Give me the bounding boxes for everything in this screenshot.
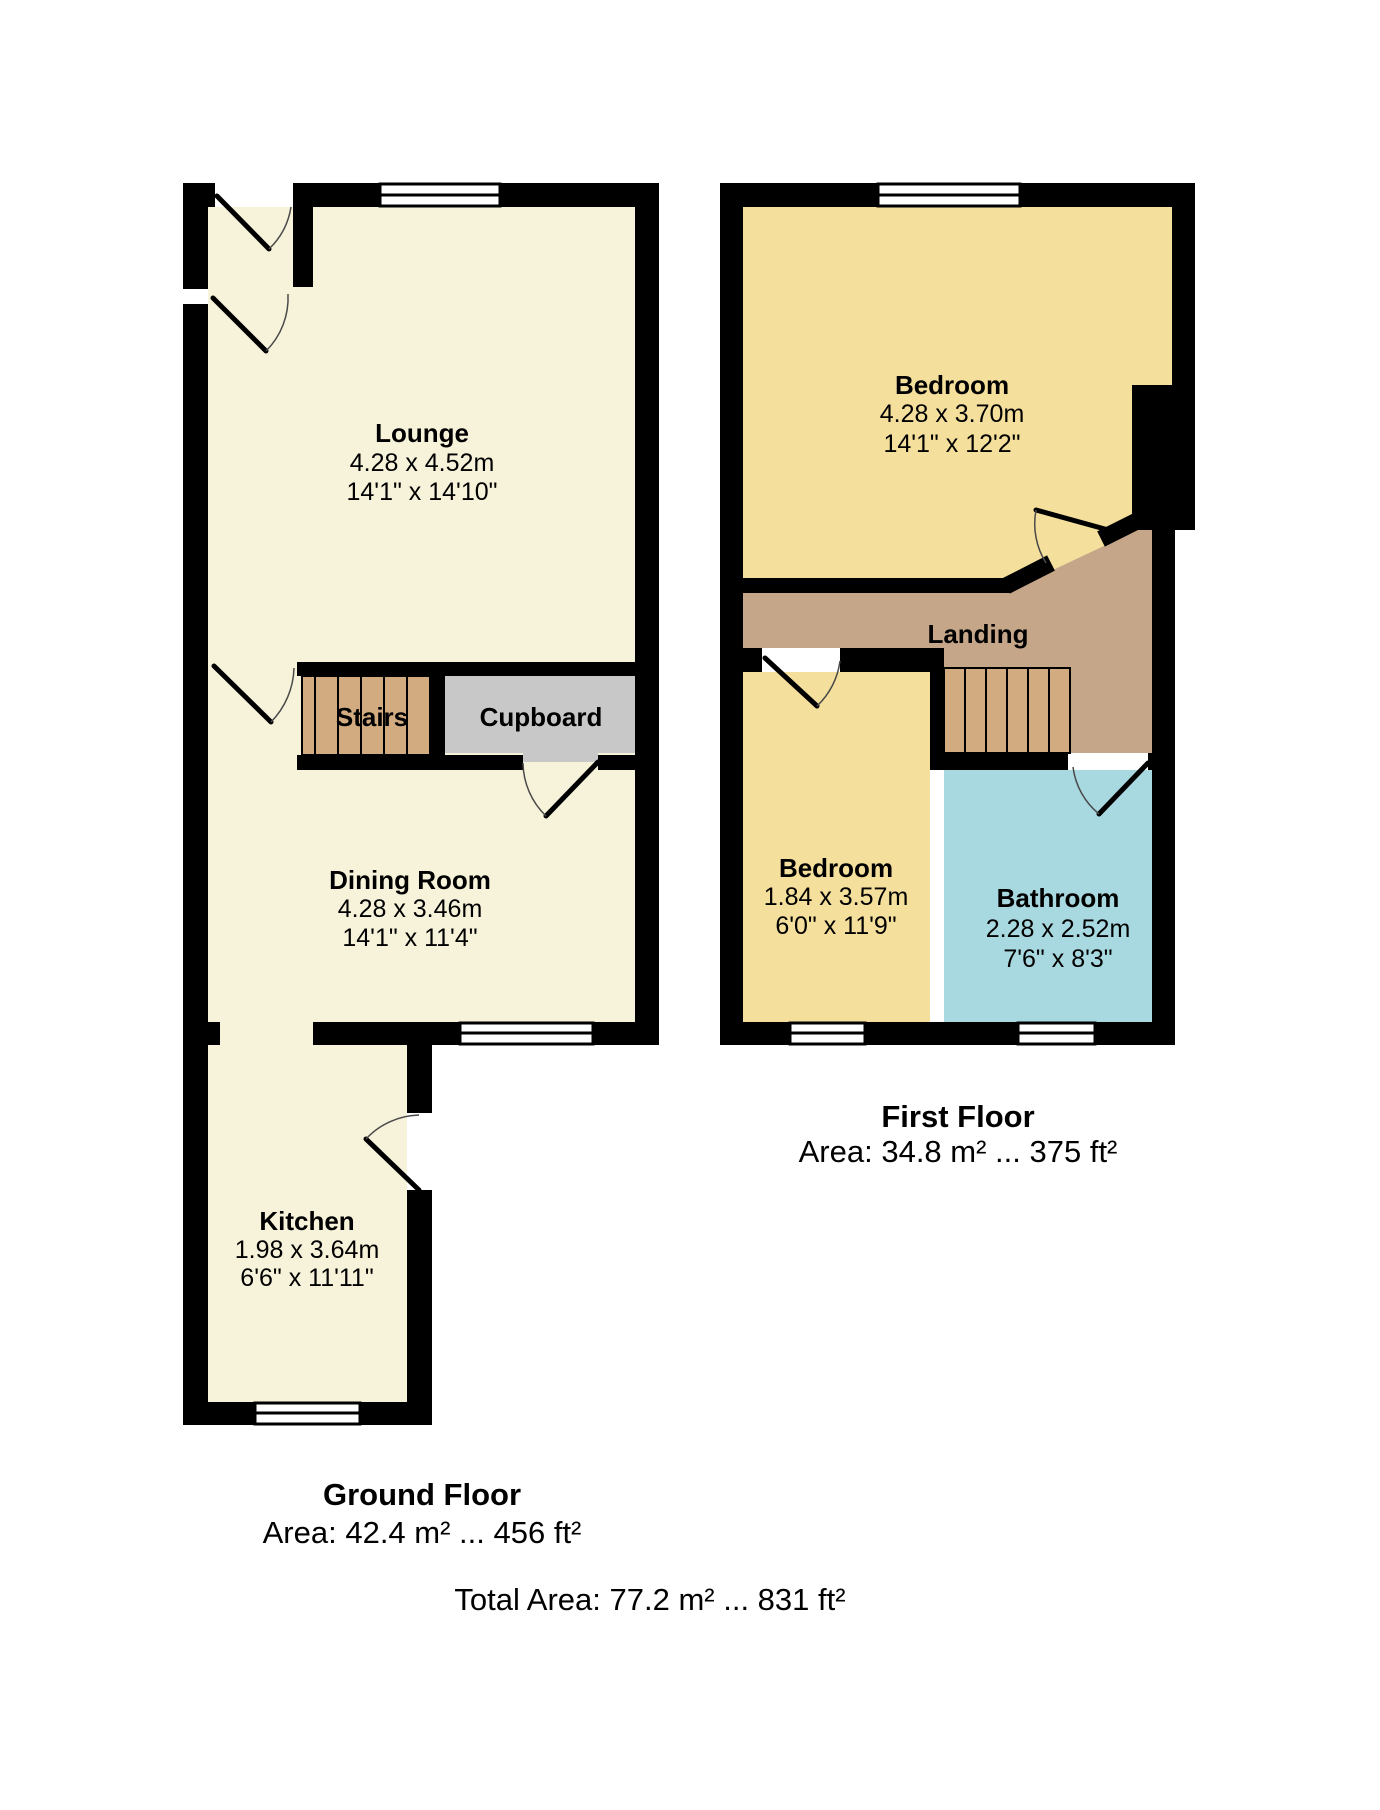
bathroom-label: Bathroom [997, 883, 1120, 913]
bedroom2-metric: 1.84 x 3.57m [764, 883, 909, 911]
dining-label: Dining Room [329, 865, 491, 895]
wall-kitchen-right-lower [407, 1190, 432, 1402]
wall-top-left-piece [183, 183, 215, 207]
ground-floor-plan: Lounge 4.28 x 4.52m 14'1" x 14'10" Stair… [183, 183, 659, 1550]
floorplan-page: Lounge 4.28 x 4.52m 14'1" x 14'10" Stair… [0, 0, 1380, 1810]
bedroom2-imperial: 6'0" x 11'9" [775, 912, 896, 940]
dining-imperial: 14'1" x 11'4" [342, 924, 477, 952]
first-floor-plan: Bedroom 4.28 x 3.70m 14'1" x 12'2" Landi… [720, 183, 1195, 1169]
wall-dining-kitchen-stub [208, 1022, 220, 1045]
wall-dining-bottom-right [593, 1022, 659, 1045]
wall-bedroom2-stairs-divider [930, 648, 944, 770]
bedroom2-label: Bedroom [779, 853, 893, 883]
wall-bedroom1-landing [720, 578, 1010, 593]
wall-left-door-notch [183, 289, 208, 304]
wall-bedroom2-top-right [840, 648, 944, 672]
wall-bathroom-top-left [930, 753, 1068, 770]
first-floor-caption: First Floor [881, 1099, 1034, 1134]
wall-bedroom2-top-left [720, 648, 762, 672]
ground-floor-area: Area: 42.4 m² ... 456 ft² [263, 1515, 582, 1550]
chimney-breast [1132, 385, 1195, 530]
ground-floor-caption: Ground Floor [323, 1477, 521, 1512]
bedroom1-label: Bedroom [895, 370, 1009, 400]
cupboard-threshold [523, 753, 598, 762]
vestibule-partition [293, 207, 313, 287]
wall-stairs-dining [297, 755, 523, 770]
lounge-label: Lounge [375, 418, 469, 448]
wall-bottom-first [720, 1022, 1175, 1045]
kitchen-metric: 1.98 x 3.64m [235, 1236, 380, 1264]
lounge-imperial: 14'1" x 14'10" [346, 478, 497, 506]
bedroom2-floor [743, 672, 930, 1022]
cupboard-label: Cupboard [480, 702, 603, 732]
wall-kitchen-right-upper [407, 1022, 432, 1113]
wall-bathroom-top-right [1148, 753, 1175, 770]
floorplan-drawing: Lounge 4.28 x 4.52m 14'1" x 14'10" Stair… [0, 0, 1380, 1810]
wall-stairs-cupboard [430, 676, 445, 755]
stairs-label: Stairs [336, 702, 408, 732]
wall-cupboard-dining [598, 755, 635, 770]
total-area-label: Total Area: 77.2 m² ... 831 ft² [454, 1582, 845, 1617]
bathroom-metric: 2.28 x 2.52m [986, 915, 1131, 943]
wall-right-lower [1152, 510, 1175, 1045]
wall-left-first [720, 183, 743, 1045]
wall-lounge-stairs [297, 662, 635, 676]
wall-left [183, 183, 208, 1425]
first-floor-stairs [944, 668, 1070, 753]
kitchen-imperial: 6'6" x 11'11" [240, 1264, 373, 1292]
lounge-metric: 4.28 x 4.52m [350, 449, 495, 477]
kitchen-label: Kitchen [259, 1206, 354, 1236]
landing-label: Landing [927, 619, 1028, 649]
first-floor-area: Area: 34.8 m² ... 375 ft² [799, 1134, 1118, 1169]
dining-metric: 4.28 x 3.46m [338, 895, 483, 923]
bedroom1-imperial: 14'1" x 12'2" [883, 430, 1020, 458]
wall-dining-bottom [313, 1022, 460, 1045]
bathroom-imperial: 7'6" x 8'3" [1003, 945, 1112, 973]
wall-right [635, 183, 659, 1045]
bedroom1-metric: 4.28 x 3.70m [880, 400, 1025, 428]
